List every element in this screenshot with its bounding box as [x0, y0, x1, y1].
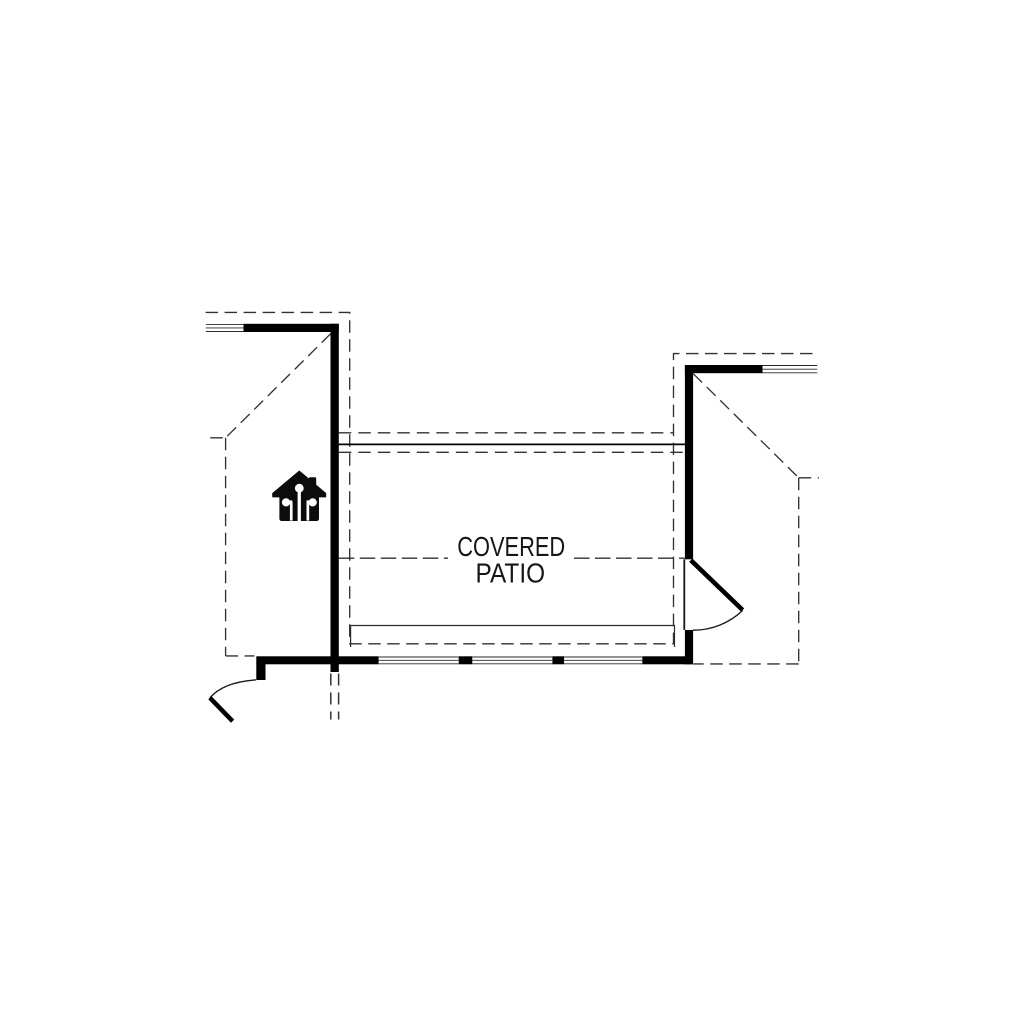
svg-text:PATIO: PATIO: [476, 557, 546, 588]
